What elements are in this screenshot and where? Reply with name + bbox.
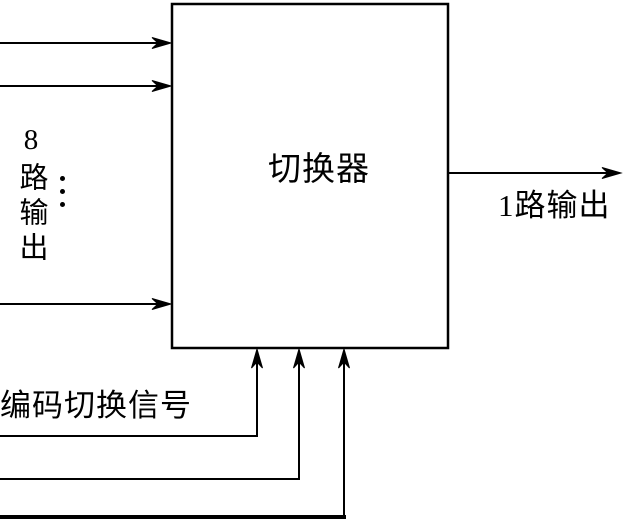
input-arrow-1 [0,38,171,49]
control-signal-label: 编码切换信号 [0,389,192,423]
output-label: 1路输出 [498,189,611,223]
diagram-graphics [0,0,623,524]
control-arrow-3 [0,349,350,518]
output-arrow [449,168,621,179]
input-arrow-2 [0,81,171,92]
diagram-canvas: 切换器 8路输出 1路输出 编码切换信号 [0,0,623,524]
input-arrow-3 [0,299,171,310]
inputs-label: 8路输出 [16,124,45,267]
vertical-ellipsis-icon [60,176,66,215]
switcher-box-label: 切换器 [268,152,370,188]
